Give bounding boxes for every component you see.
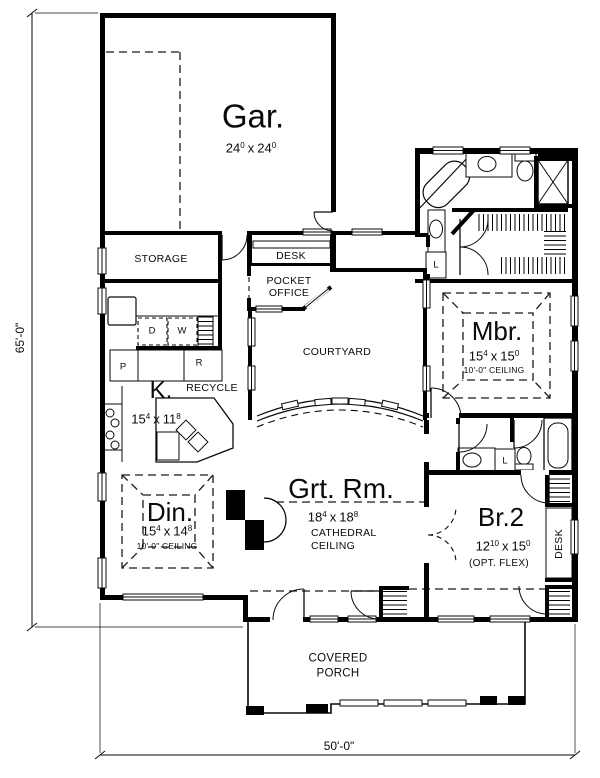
porch-label-1: COVERED	[309, 653, 368, 665]
bath2-toilet-tank	[515, 464, 533, 470]
plan-drawing	[0, 0, 600, 778]
kitchen-dim-a: 15	[131, 412, 145, 427]
br2-closet-hatch	[549, 589, 570, 616]
island-cabinet	[157, 432, 179, 460]
kitchen-label: K.	[150, 379, 173, 403]
great-room-dimensions: 184x188	[308, 511, 358, 524]
porch-sill	[340, 700, 378, 706]
linen-label-master: L	[433, 260, 438, 270]
garage-dim-a: 24	[226, 141, 240, 156]
master-sink-2	[430, 220, 443, 238]
master-ceiling-note: 10'-0" CEILING	[464, 366, 525, 375]
desk-nook-counter	[253, 241, 330, 248]
recycle-label: RECYCLE	[186, 383, 238, 394]
porch-sill	[428, 700, 466, 706]
garage-dim-ai: 0	[240, 141, 244, 150]
kitchen-dim-b: 11	[163, 412, 177, 427]
kitchen-dim-ai: 4	[146, 412, 150, 421]
great-room-ceiling-1: CATHEDRAL	[311, 528, 377, 539]
bedroom2-flex-note: (OPT. FLEX)	[469, 559, 529, 569]
floor-plan: Gar. 240x240 STORAGE DESK POCKET OFFICE …	[0, 0, 600, 778]
curve-window	[332, 398, 348, 404]
master-bedroom-dimensions: 154x150	[469, 350, 519, 363]
desk-nook-label: DESK	[276, 251, 306, 262]
garage-dim-b: 24	[257, 141, 271, 156]
garage-dim-bi: 0	[272, 141, 276, 150]
bath2-toilet	[517, 448, 531, 465]
bedroom2-desk-label: DESK	[554, 529, 565, 559]
dining-dim-a: 15	[142, 524, 156, 539]
dining-dim-bi: 8	[188, 524, 192, 533]
grt-dim-b: 18	[339, 510, 353, 525]
closet-rod-hatch	[478, 214, 566, 231]
grt-dim-ai: 4	[322, 510, 326, 519]
br2-dim-bi: 0	[526, 539, 530, 548]
courtyard-label: COURTYARD	[303, 347, 371, 358]
grt-dim-a: 18	[308, 510, 322, 525]
porch-label-2: PORCH	[316, 668, 359, 680]
br2-dim-a: 12	[476, 539, 490, 554]
bath2-sink	[463, 453, 481, 467]
garage-dim-x: x	[248, 141, 255, 156]
mbr-dim-ai: 4	[483, 349, 487, 358]
washer-label: W	[178, 326, 187, 336]
kitchen-dim-bi: 8	[176, 412, 180, 421]
curve-window	[315, 398, 331, 405]
bath2-tub-inner	[548, 423, 568, 468]
master-bedroom-label: Mbr.	[472, 318, 523, 344]
dining-label: Din.	[147, 499, 193, 525]
paper-background	[0, 0, 600, 778]
toilet-bowl	[517, 161, 533, 181]
br2-dim-b: 15	[511, 539, 525, 554]
master-sink	[478, 157, 496, 172]
porch-sill	[384, 700, 422, 706]
overall-depth-dimension: 65'-0"	[14, 323, 26, 354]
mbr-dim-x: x	[491, 349, 498, 364]
pocket-office-label-1: POCKET	[267, 276, 312, 287]
pantry-label: P	[120, 362, 126, 372]
curve-window	[349, 398, 365, 405]
porch-post	[306, 704, 328, 713]
mbr-dim-bi: 0	[515, 349, 519, 358]
dining-dim-x: x	[164, 524, 171, 539]
entry-closet-hatch	[383, 590, 407, 620]
grt-dim-bi: 8	[354, 510, 358, 519]
br2-closet-hatch	[549, 474, 570, 502]
dining-dimensions: 154x148	[142, 525, 192, 538]
porch-post	[508, 696, 525, 705]
closet-rod-hatch	[498, 257, 566, 274]
kitchen-dimensions: 154x118	[131, 413, 180, 426]
great-room-ceiling-2: CEILING	[311, 541, 355, 552]
bedroom2-label: Br.2	[478, 504, 524, 530]
great-room-label: Grt. Rm.	[288, 475, 394, 503]
br2-dim-x: x	[502, 539, 509, 554]
shower-chase	[538, 150, 574, 161]
porch-post	[480, 696, 497, 705]
bedroom2-dimensions: 1210x150	[476, 540, 531, 553]
linen-label-bath2: L	[502, 456, 507, 466]
closet-rod-hatch	[544, 230, 566, 257]
mbr-dim-a: 15	[469, 349, 483, 364]
laundry-sink	[108, 297, 136, 325]
dining-ceiling-note: 10'-0" CEILING	[137, 542, 198, 551]
dining-dim-b: 14	[173, 524, 187, 539]
garage-dimensions: 240x240	[226, 142, 276, 155]
storage-label: STORAGE	[134, 254, 187, 265]
br2-dim-ai: 10	[490, 539, 499, 548]
grt-dim-x: x	[330, 510, 337, 525]
pocket-office-label-2: OFFICE	[269, 288, 309, 299]
overall-width-dimension: 50'-0"	[324, 740, 355, 752]
dryer-label: D	[149, 326, 156, 336]
basement-stairs	[198, 317, 213, 347]
porch-post	[246, 706, 264, 715]
mbr-dim-b: 15	[500, 349, 514, 364]
refrigerator-label: R	[196, 358, 203, 368]
kitchen-dim-x: x	[153, 412, 160, 427]
dining-dim-ai: 4	[156, 524, 160, 533]
garage-label: Gar.	[222, 100, 284, 133]
